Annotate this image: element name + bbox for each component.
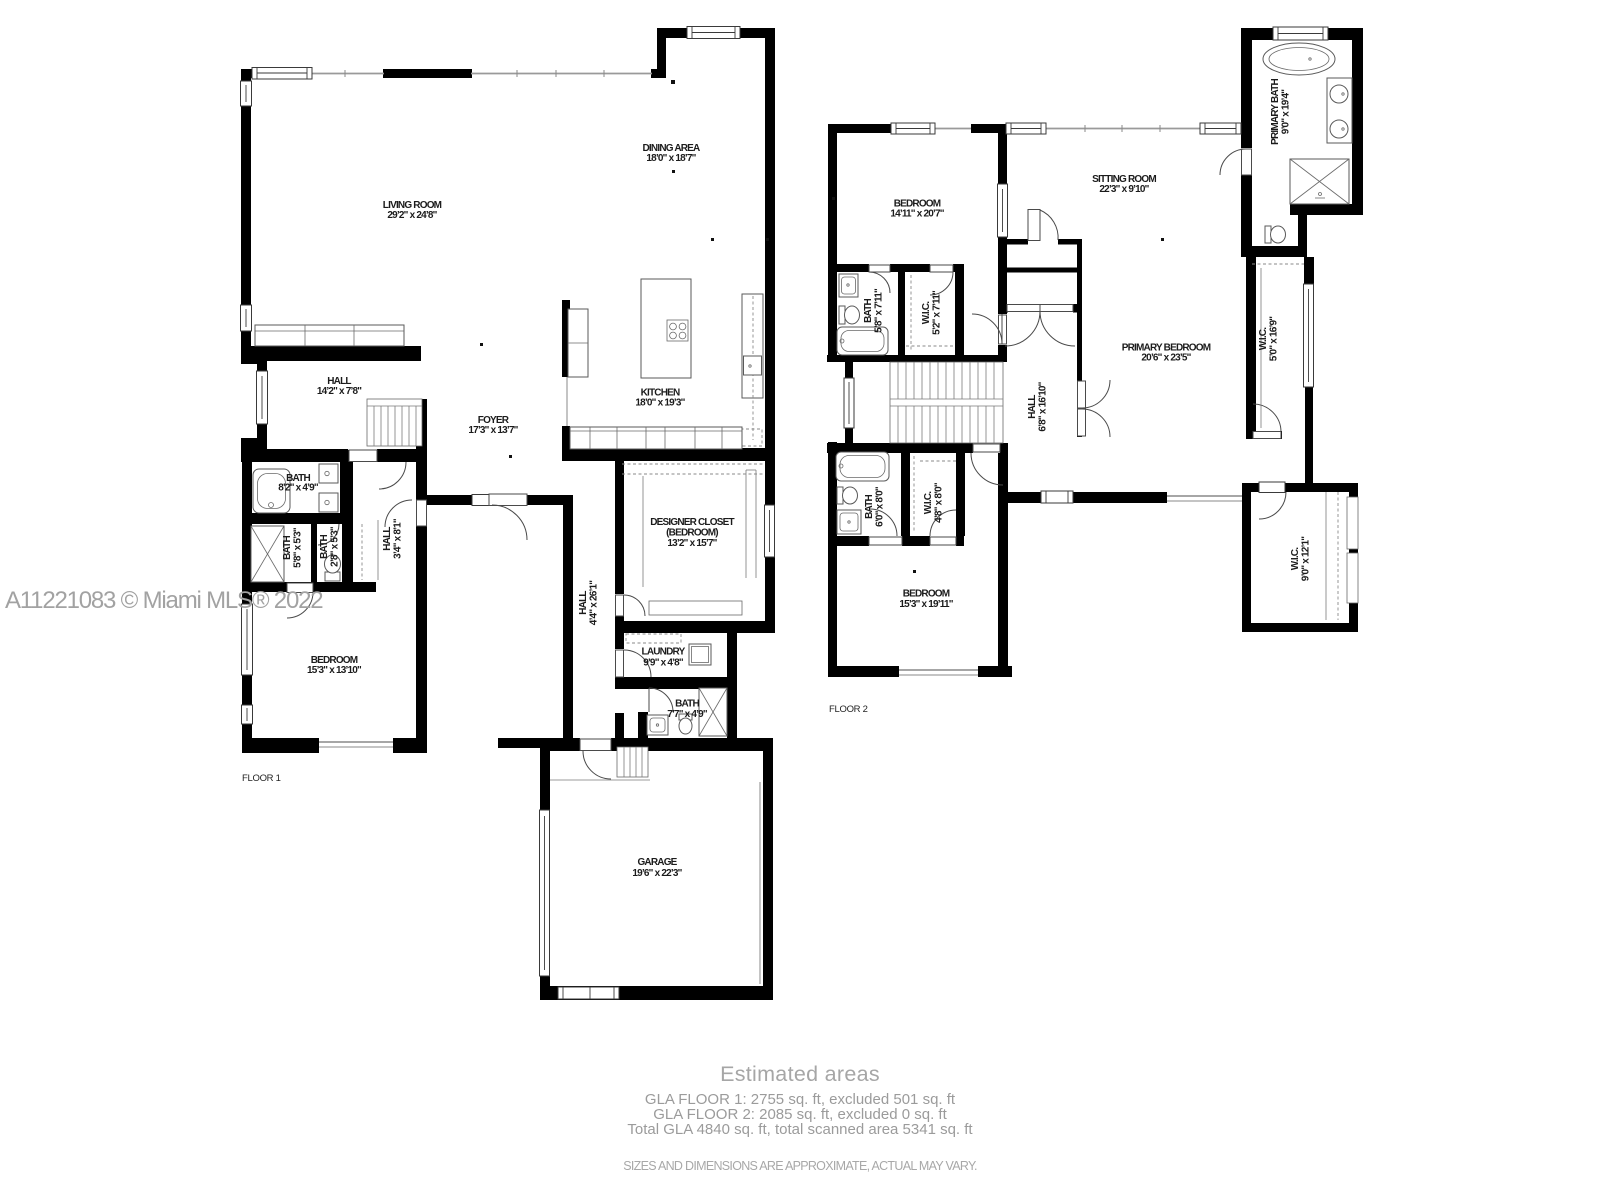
svg-text:BATH: BATH — [675, 699, 699, 710]
svg-text:4’8" x 8’0": 4’8" x 8’0" — [934, 482, 945, 523]
svg-text:SIZES AND DIMENSIONS ARE APPRO: SIZES AND DIMENSIONS ARE APPROXIMATE, AC… — [623, 1159, 977, 1173]
svg-text:BATH: BATH — [282, 536, 293, 560]
svg-text:(BEDROOM): (BEDROOM) — [666, 528, 718, 539]
svg-text:15’3" x 13’10": 15’3" x 13’10" — [307, 665, 362, 676]
svg-text:W.I.C.: W.I.C. — [921, 301, 932, 324]
svg-text:BATH: BATH — [863, 299, 874, 323]
svg-text:5’0" x 16’9": 5’0" x 16’9" — [1269, 316, 1280, 361]
svg-text:5’8" x 5’3": 5’8" x 5’3" — [293, 527, 304, 568]
svg-text:DESIGNER CLOSET: DESIGNER CLOSET — [650, 517, 734, 528]
svg-text:BATH: BATH — [864, 495, 875, 519]
svg-text:A11221083 © Miami MLS® 2022: A11221083 © Miami MLS® 2022 — [5, 587, 323, 614]
svg-text:3’4" x 8’1": 3’4" x 8’1" — [393, 518, 404, 559]
svg-text:GARAGE: GARAGE — [637, 857, 677, 868]
svg-text:LAUNDRY: LAUNDRY — [642, 647, 686, 658]
svg-text:5’2" x 7’11": 5’2" x 7’11" — [932, 290, 943, 335]
svg-text:4’4" x 26’1": 4’4" x 26’1" — [589, 580, 600, 625]
svg-text:20’6" x 23’5": 20’6" x 23’5" — [1141, 353, 1191, 364]
svg-text:BATH: BATH — [319, 535, 330, 559]
svg-text:17’3" x 13’7": 17’3" x 13’7" — [468, 425, 518, 436]
svg-text:19’6" x 22’3": 19’6" x 22’3" — [632, 868, 682, 879]
svg-text:6’8" x 16’10": 6’8" x 16’10" — [1038, 381, 1049, 431]
svg-text:W.I.C.: W.I.C. — [1258, 327, 1269, 350]
svg-text:Estimated areas: Estimated areas — [720, 1062, 880, 1086]
svg-text:PRIMARY BATH: PRIMARY BATH — [1270, 79, 1281, 145]
svg-text:9’0" x 12’1": 9’0" x 12’1" — [1301, 536, 1312, 581]
svg-text:FLOOR 1: FLOOR 1 — [242, 773, 281, 784]
svg-text:2’8" x 5’3": 2’8" x 5’3" — [330, 526, 341, 567]
svg-text:HALL: HALL — [578, 591, 589, 615]
svg-text:18’0" x 18’7": 18’0" x 18’7" — [646, 153, 696, 164]
svg-text:Total GLA 4840 sq. ft, total s: Total GLA 4840 sq. ft, total scanned are… — [627, 1121, 973, 1138]
svg-text:9’9" x 4’8": 9’9" x 4’8" — [643, 658, 684, 669]
svg-text:8’2" x 4’9": 8’2" x 4’9" — [278, 483, 319, 494]
svg-text:29’2" x 24’8": 29’2" x 24’8" — [387, 210, 437, 221]
svg-text:14’11" x 20’7": 14’11" x 20’7" — [890, 209, 944, 220]
svg-text:13’2" x 15’7": 13’2" x 15’7" — [667, 538, 717, 549]
svg-text:22’3" x 9’10": 22’3" x 9’10" — [1099, 184, 1149, 195]
svg-text:6’0" x 8’0": 6’0" x 8’0" — [875, 486, 886, 527]
svg-text:18’0" x 19’3": 18’0" x 19’3" — [635, 398, 685, 409]
svg-text:HALL: HALL — [1027, 395, 1038, 419]
svg-text:BEDROOM: BEDROOM — [903, 589, 950, 600]
svg-text:15’3" x 19’11": 15’3" x 19’11" — [899, 599, 953, 610]
svg-text:W.I.C.: W.I.C. — [923, 491, 934, 514]
svg-text:9’0" x 19’4": 9’0" x 19’4" — [1281, 89, 1292, 134]
svg-text:14’2" x 7’8": 14’2" x 7’8" — [317, 386, 362, 397]
svg-text:HALL: HALL — [382, 527, 393, 551]
svg-text:7’7" x 4’9": 7’7" x 4’9" — [667, 709, 708, 720]
svg-text:5’8" x 7’11": 5’8" x 7’11" — [874, 288, 885, 333]
svg-text:W.I.C.: W.I.C. — [1290, 547, 1301, 570]
svg-text:FLOOR 2: FLOOR 2 — [829, 704, 868, 715]
